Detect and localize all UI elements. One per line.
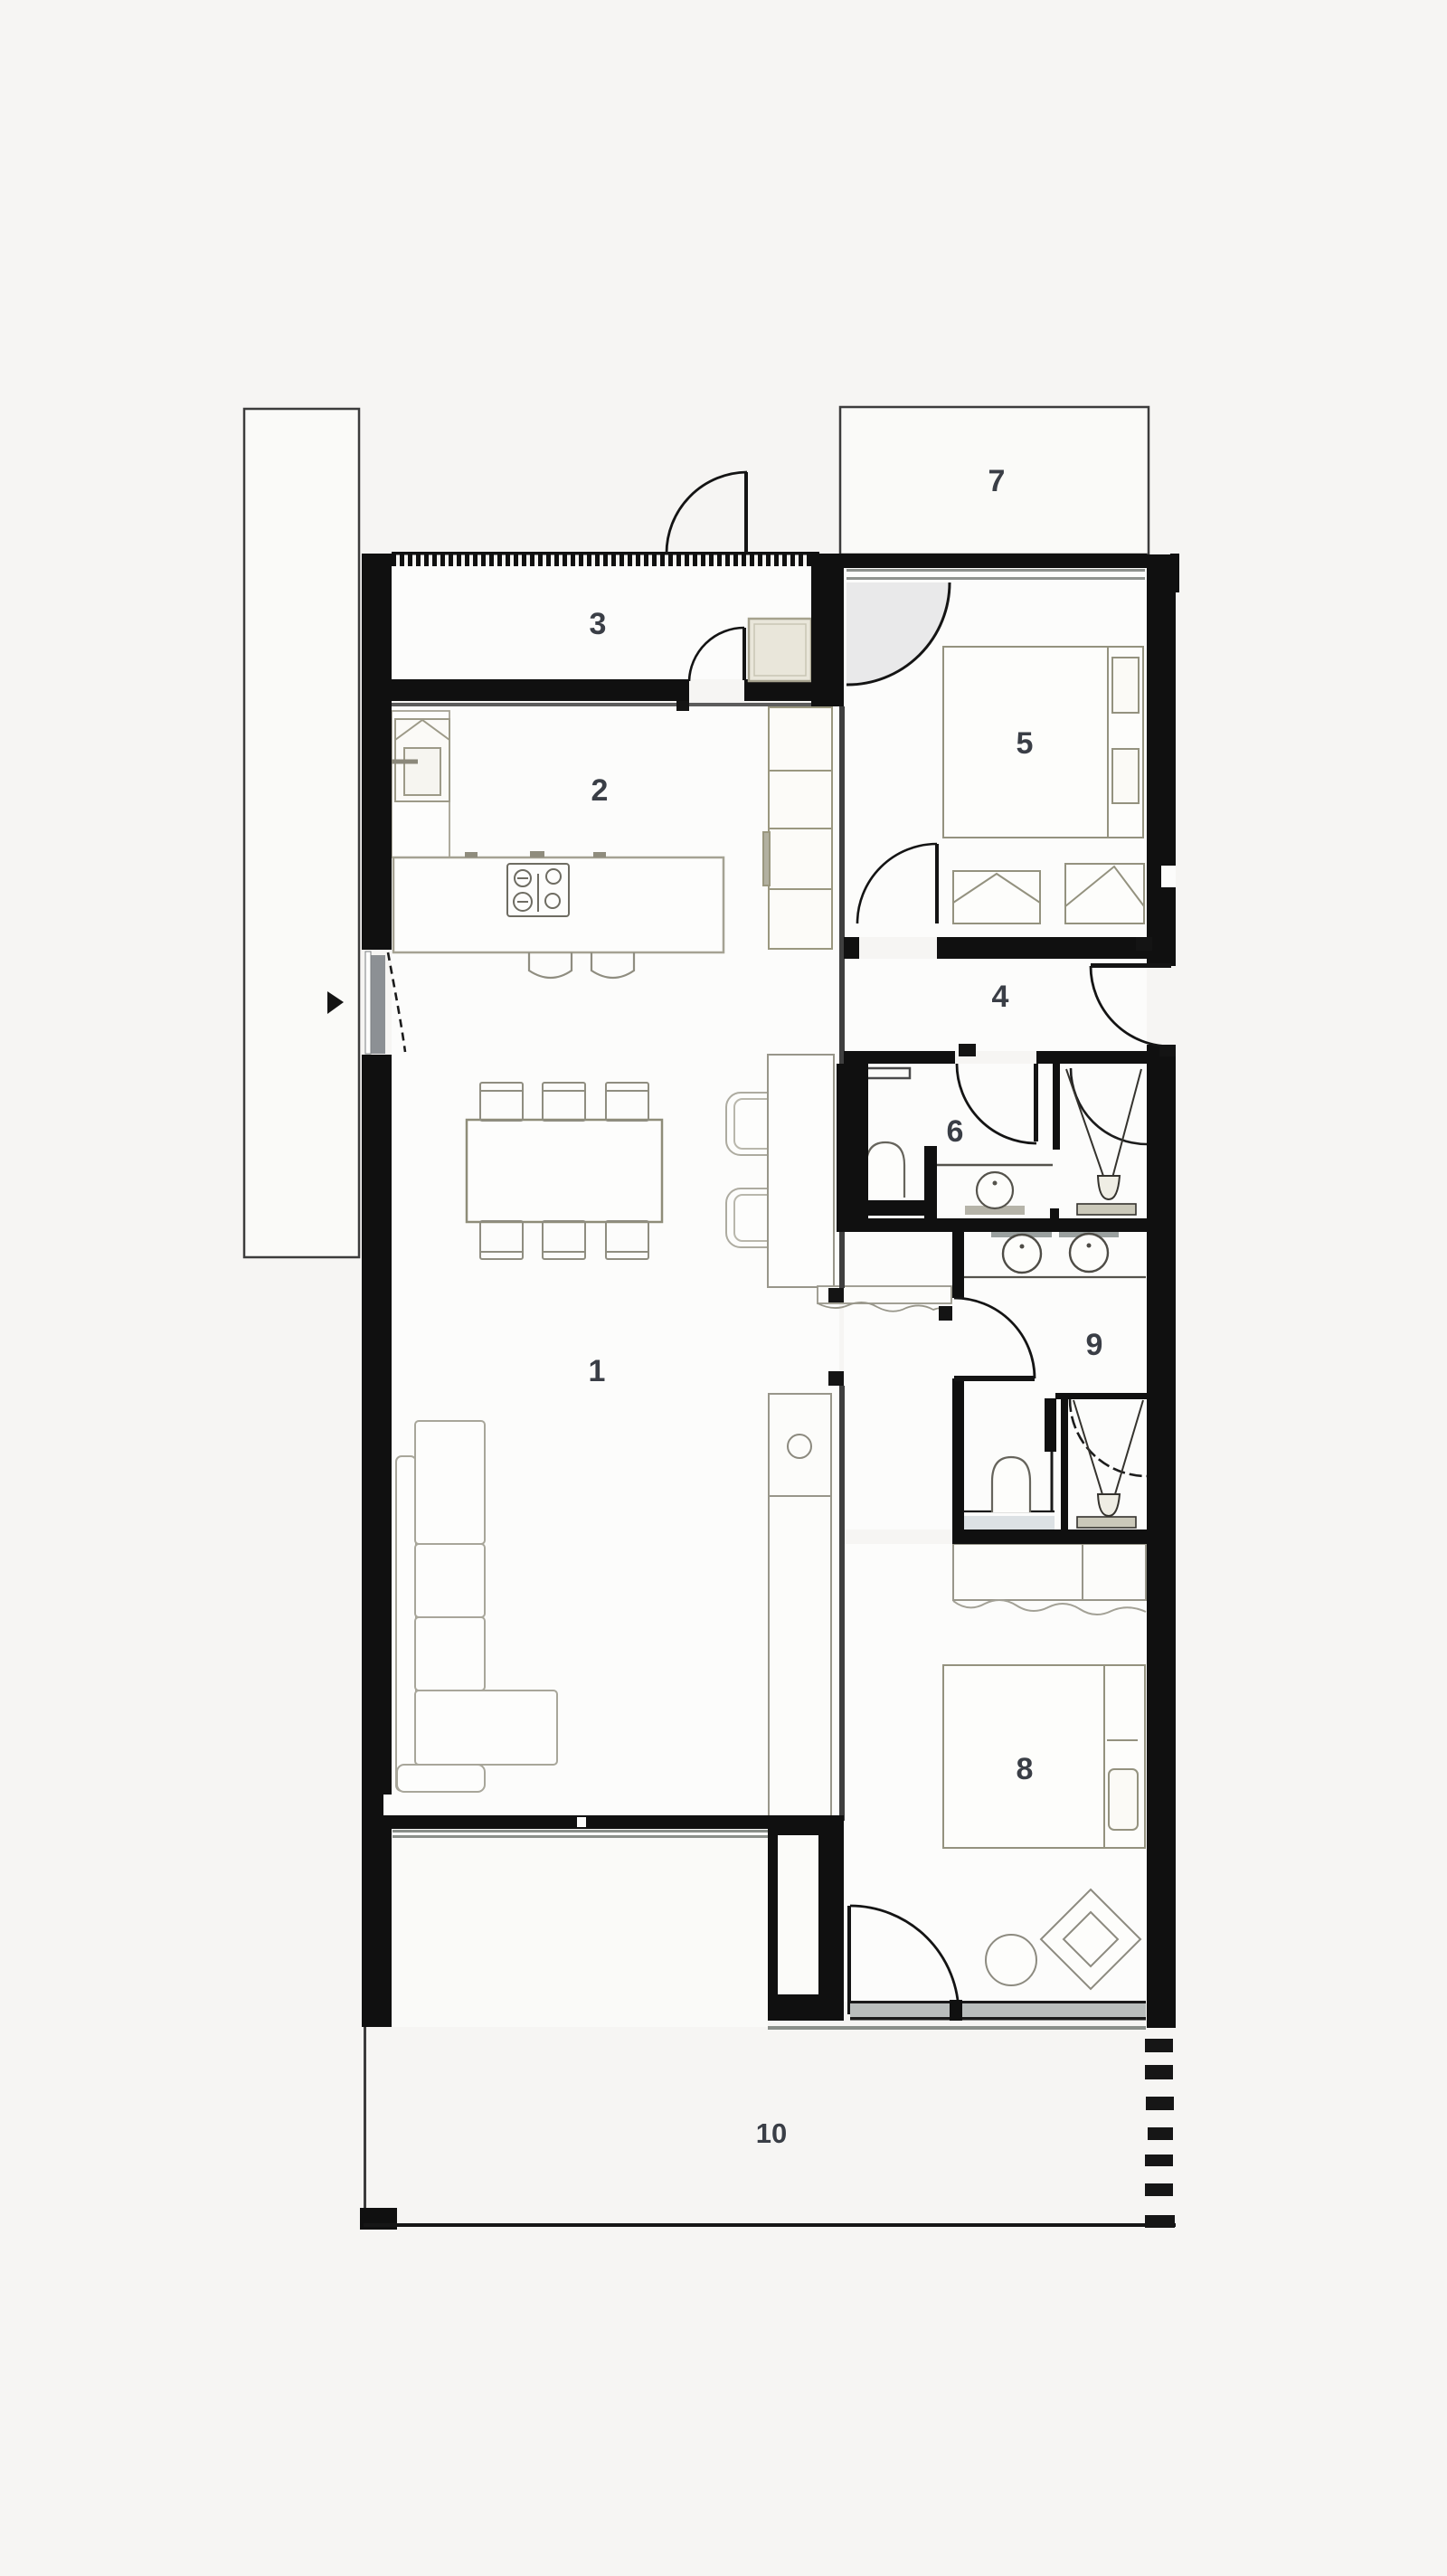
svg-text:2: 2 xyxy=(591,773,609,808)
svg-text:4: 4 xyxy=(992,980,1009,1014)
svg-text:5: 5 xyxy=(1017,726,1034,761)
svg-text:3: 3 xyxy=(590,607,607,641)
svg-text:9: 9 xyxy=(1086,1328,1103,1362)
svg-text:10: 10 xyxy=(756,2117,787,2149)
svg-text:1: 1 xyxy=(589,1354,606,1388)
svg-text:6: 6 xyxy=(947,1114,964,1149)
svg-text:7: 7 xyxy=(988,464,1006,498)
svg-text:8: 8 xyxy=(1017,1752,1034,1786)
